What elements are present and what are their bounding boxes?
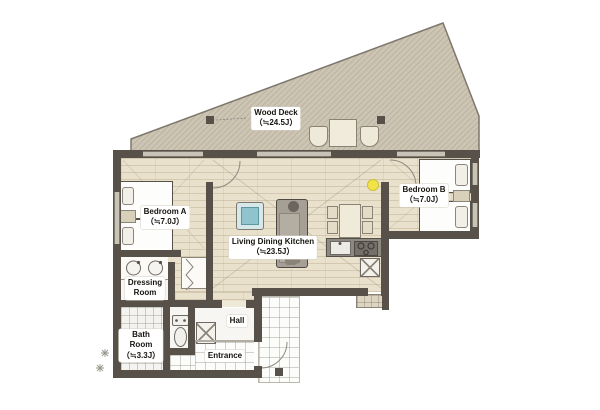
opening-hall-door	[222, 301, 246, 307]
room-name: Bath	[122, 330, 160, 340]
wall-entrance-east-upper	[254, 308, 262, 342]
room-label-dressing-room: Dressing Room	[125, 277, 165, 300]
room-name: Entrance	[208, 351, 242, 361]
room-label-hall: Hall	[227, 315, 248, 327]
room-name: Room	[122, 340, 160, 350]
window-bedroom-a-west	[114, 192, 120, 244]
wall-dressing-east	[168, 262, 175, 303]
floor-plan: Wood Deck （≒24.5J） Bedroom A （≒7.0J） Bed…	[0, 0, 600, 410]
wall-ldk-south-east	[252, 288, 368, 296]
room-size: （≒3.3J）	[122, 351, 160, 361]
room-name: Wood Deck	[254, 108, 297, 118]
wall-step-platform-east	[382, 292, 389, 310]
stove-burner-icons	[358, 243, 374, 255]
wall-partition-bedroom-a	[206, 182, 213, 258]
room-label-bedroom-a: Bedroom A （≒7.0J）	[141, 206, 190, 229]
sink-faucet-icon	[339, 242, 342, 245]
room-name: Living Dining Kitchen	[232, 237, 314, 247]
room-size: （≒24.5J）	[254, 118, 297, 128]
window-bedroom-b-north	[397, 151, 445, 157]
wall-bottom-entrance	[188, 370, 262, 378]
room-label-bedroom-b: Bedroom B （≒7.0J）	[399, 184, 448, 207]
room-label-wood-deck: Wood Deck （≒24.5J）	[251, 107, 300, 130]
room-size: （≒7.0J）	[402, 195, 445, 205]
sliding-door-deck	[257, 151, 331, 157]
wall-bedroom-b-bottom	[381, 231, 479, 239]
wall-hall-north-east	[246, 300, 262, 308]
wall-entrance-east-lower	[254, 366, 262, 378]
toilet-icon	[173, 316, 189, 347]
room-label-living-dining-kitchen: Living Dining Kitchen （≒23.5J）	[229, 236, 317, 259]
room-label-bath-room: Bath Room （≒3.3J）	[119, 329, 163, 362]
window-bedroom-b-east-lower	[472, 203, 478, 227]
room-label-entrance: Entrance	[205, 350, 245, 362]
room-name: Hall	[230, 316, 245, 326]
room-name: Bedroom A	[144, 207, 187, 217]
room-name: Dressing	[128, 278, 162, 288]
room-size: （≒7.0J）	[144, 217, 187, 227]
window-bedroom-a-north	[143, 151, 203, 157]
window-bedroom-b-east-upper	[472, 163, 478, 185]
room-size: （≒23.5J）	[232, 247, 314, 257]
wall-bath-north	[113, 300, 196, 307]
folding-door-icon	[186, 259, 193, 290]
wall-toilet-south	[163, 348, 195, 355]
wall-toilet-east	[188, 307, 195, 352]
wall-bath-east	[163, 307, 170, 370]
wash-basin-icons	[127, 261, 163, 275]
room-name: Room	[128, 288, 162, 298]
room-name: Bedroom B	[402, 185, 445, 195]
wall-ldk-east	[381, 182, 389, 296]
fixtures-layer	[0, 0, 600, 410]
wall-bedroom-a-south	[121, 250, 181, 257]
wall-partition-corridor	[206, 258, 213, 302]
